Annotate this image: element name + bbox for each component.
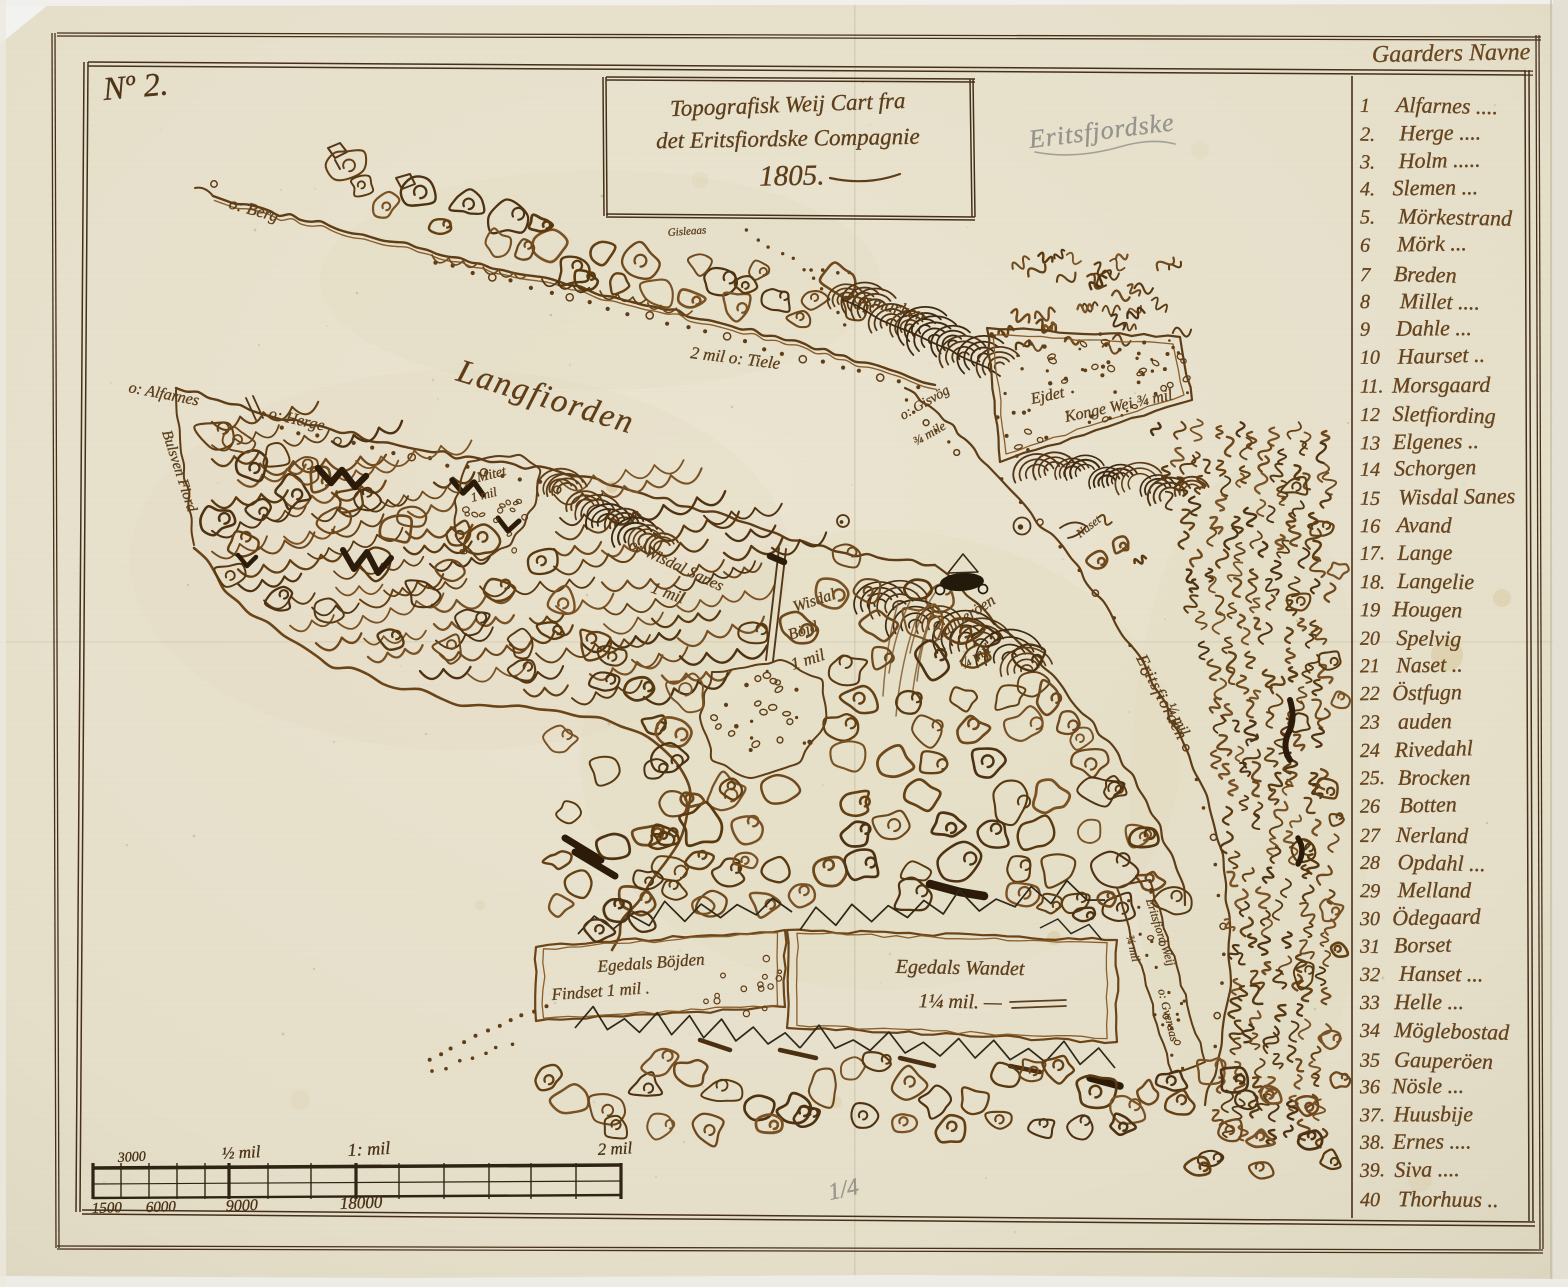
svg-text:18000: 18000 <box>339 1193 383 1213</box>
svg-text:Östfugn: Östfugn <box>1392 679 1462 705</box>
svg-text:21: 21 <box>1360 655 1381 678</box>
svg-text:1¼ mil. —: 1¼ mil. — <box>918 990 1002 1013</box>
svg-text:Rivedahl: Rivedahl <box>1393 735 1473 762</box>
svg-text:37.: 37. <box>1359 1105 1385 1127</box>
svg-text:3000: 3000 <box>116 1150 146 1166</box>
svg-text:Lange: Lange <box>1396 540 1452 565</box>
svg-text:2.: 2. <box>1360 123 1376 145</box>
svg-text:23: 23 <box>1360 711 1380 733</box>
svg-text:17.: 17. <box>1359 542 1385 565</box>
svg-text:Spelvig: Spelvig <box>1396 625 1461 651</box>
svg-text:25.: 25. <box>1359 767 1385 790</box>
svg-text:Elgenes ..: Elgenes .. <box>1392 428 1479 454</box>
svg-text:Gaarders Navne: Gaarders Navne <box>1372 39 1531 68</box>
svg-text:Brocken: Brocken <box>1398 765 1471 790</box>
svg-text:11.: 11. <box>1360 376 1384 398</box>
svg-text:27: 27 <box>1360 825 1381 847</box>
svg-text:Schorgen: Schorgen <box>1394 454 1477 481</box>
svg-text:29: 29 <box>1360 880 1380 902</box>
svg-text:40: 40 <box>1360 1189 1380 1211</box>
svg-text:5.: 5. <box>1360 206 1375 228</box>
svg-text:Ernes ....: Ernes .... <box>1392 1128 1472 1153</box>
svg-text:Huusbije: Huusbije <box>1393 1102 1474 1127</box>
svg-text:Haurset ..: Haurset .. <box>1396 342 1485 369</box>
svg-text:39.: 39. <box>1358 1159 1385 1182</box>
svg-text:Borset: Borset <box>1394 932 1453 958</box>
svg-text:6: 6 <box>1360 235 1370 257</box>
svg-text:Möglebostad: Möglebostad <box>1393 1017 1510 1045</box>
svg-text:34: 34 <box>1359 1020 1380 1042</box>
svg-text:30: 30 <box>1359 908 1380 930</box>
svg-text:1500: 1500 <box>92 1200 123 1217</box>
svg-text:½ mil: ½ mil <box>221 1142 261 1163</box>
svg-text:1: 1 <box>1360 95 1370 117</box>
svg-text:Nº 2.: Nº 2. <box>101 66 170 108</box>
svg-text:33: 33 <box>1359 992 1380 1014</box>
svg-text:Holm .....: Holm ..... <box>1397 147 1480 174</box>
svg-text:31: 31 <box>1359 936 1380 958</box>
svg-text:22: 22 <box>1360 683 1381 705</box>
svg-text:Sletfiording: Sletfiording <box>1392 401 1496 429</box>
svg-text:Alfarnes ....: Alfarnes .... <box>1394 92 1499 119</box>
svg-text:Naset ..: Naset .. <box>1395 652 1463 678</box>
svg-text:35: 35 <box>1359 1050 1380 1072</box>
svg-text:36: 36 <box>1359 1076 1380 1098</box>
svg-text:Avand: Avand <box>1395 512 1453 538</box>
svg-text:Herge ....: Herge .... <box>1398 119 1481 145</box>
svg-text:9: 9 <box>1360 319 1370 341</box>
svg-text:1: mil: 1: mil <box>347 1138 390 1160</box>
svg-text:6000: 6000 <box>146 1199 177 1216</box>
svg-text:Siva ....: Siva .... <box>1394 1156 1460 1182</box>
svg-text:4.: 4. <box>1360 178 1375 200</box>
svg-text:32: 32 <box>1359 964 1381 987</box>
svg-text:auden: auden <box>1398 708 1452 734</box>
svg-text:13: 13 <box>1360 432 1381 455</box>
svg-text:Botten: Botten <box>1399 791 1457 817</box>
svg-text:Wisdal Sanes: Wisdal Sanes <box>1398 483 1515 509</box>
svg-text:16: 16 <box>1360 515 1381 538</box>
svg-text:2 mil: 2 mil <box>597 1138 633 1159</box>
svg-text:15: 15 <box>1360 488 1381 511</box>
svg-text:9000: 9000 <box>226 1197 259 1215</box>
svg-text:20: 20 <box>1360 628 1380 650</box>
svg-text:det Eritsfiordske Compagnie: det Eritsfiordske Compagnie <box>656 124 920 154</box>
svg-text:Ödegaard: Ödegaard <box>1392 904 1482 931</box>
svg-text:19: 19 <box>1360 599 1381 621</box>
svg-text:7: 7 <box>1360 264 1372 286</box>
svg-text:Nerland: Nerland <box>1395 822 1470 848</box>
svg-text:Hanset ...: Hanset ... <box>1398 961 1484 987</box>
svg-text:Hougen: Hougen <box>1391 596 1462 622</box>
svg-text:26: 26 <box>1360 796 1380 818</box>
svg-text:14: 14 <box>1360 459 1380 481</box>
svg-text:Breden: Breden <box>1394 261 1457 288</box>
svg-text:8: 8 <box>1360 291 1370 313</box>
svg-text:Gauperöen: Gauperöen <box>1394 1047 1494 1074</box>
svg-text:Opdahl ...: Opdahl ... <box>1397 849 1486 876</box>
svg-text:28: 28 <box>1360 852 1380 874</box>
svg-text:Dahle ...: Dahle ... <box>1395 315 1472 341</box>
svg-text:38.: 38. <box>1359 1131 1385 1153</box>
svg-text:Egedals Wandet: Egedals Wandet <box>895 956 1025 980</box>
svg-text:Slemen ...: Slemen ... <box>1392 174 1478 200</box>
svg-text:24: 24 <box>1360 740 1380 762</box>
svg-text:Nösle ...: Nösle ... <box>1391 1073 1464 1099</box>
svg-text:12: 12 <box>1360 404 1380 426</box>
svg-text:Thorhuus ..: Thorhuus .. <box>1398 1186 1499 1212</box>
svg-text:Morsgaard: Morsgaard <box>1391 372 1491 398</box>
svg-text:Mörkestrand: Mörkestrand <box>1397 203 1513 230</box>
svg-text:1805.: 1805. <box>759 159 825 192</box>
svg-text:Langelie: Langelie <box>1396 568 1475 594</box>
svg-text:Melland: Melland <box>1397 877 1472 903</box>
svg-text:10: 10 <box>1360 347 1380 369</box>
svg-text:Millet ....: Millet .... <box>1399 288 1480 314</box>
svg-text:3.: 3. <box>1359 151 1376 173</box>
svg-text:Helle ...: Helle ... <box>1393 989 1464 1014</box>
svg-text:18.: 18. <box>1360 571 1386 594</box>
svg-text:Mörk ...: Mörk ... <box>1396 230 1467 256</box>
